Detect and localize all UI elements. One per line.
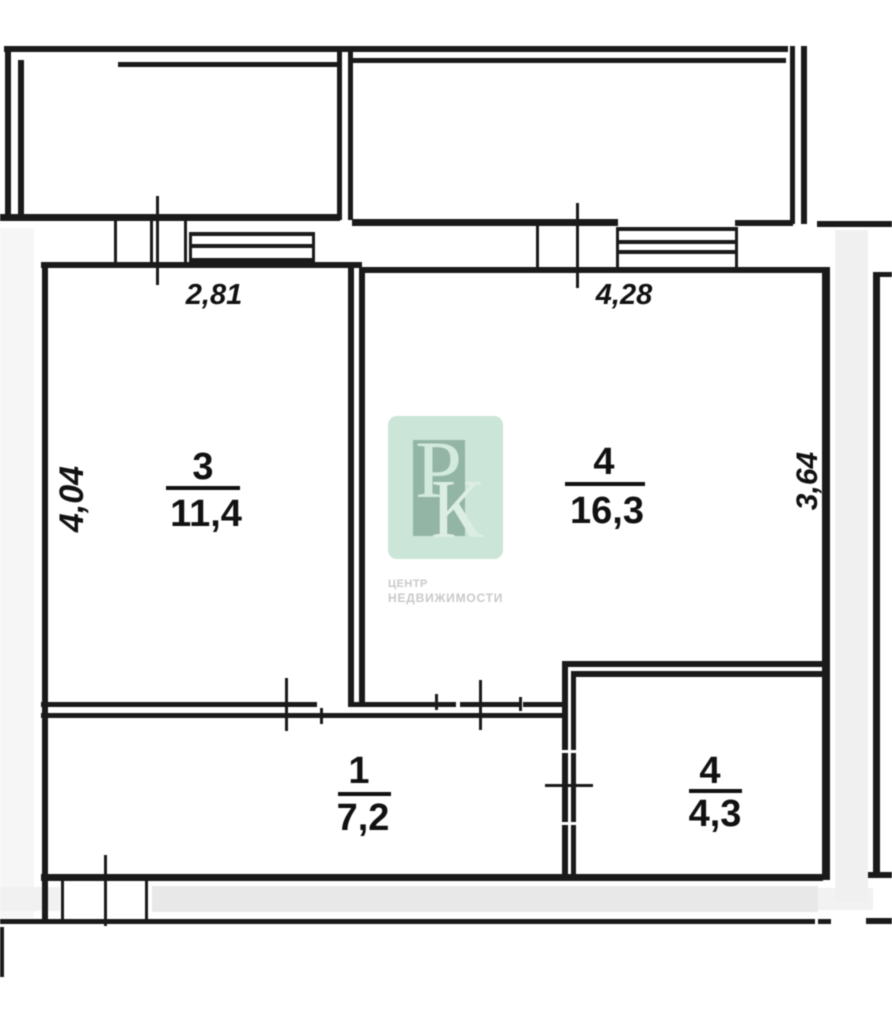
svg-text:16,3: 16,3	[570, 490, 644, 532]
svg-text:3: 3	[192, 446, 213, 488]
svg-text:4: 4	[699, 750, 720, 792]
svg-text:11,4: 11,4	[170, 493, 242, 535]
svg-text:3,64: 3,64	[791, 451, 824, 510]
svg-text:К: К	[431, 463, 484, 556]
svg-text:4,3: 4,3	[689, 793, 742, 835]
svg-text:4: 4	[593, 441, 614, 483]
svg-text:7,2: 7,2	[337, 797, 390, 839]
svg-text:ЦЕНТР: ЦЕНТР	[388, 578, 428, 590]
svg-text:4,28: 4,28	[595, 279, 653, 311]
svg-text:4,04: 4,04	[53, 466, 91, 533]
svg-text:2,81: 2,81	[185, 279, 242, 311]
svg-text:1: 1	[348, 750, 369, 792]
svg-text:НЕДВИЖИМОСТИ: НЕДВИЖИМОСТИ	[388, 591, 503, 605]
